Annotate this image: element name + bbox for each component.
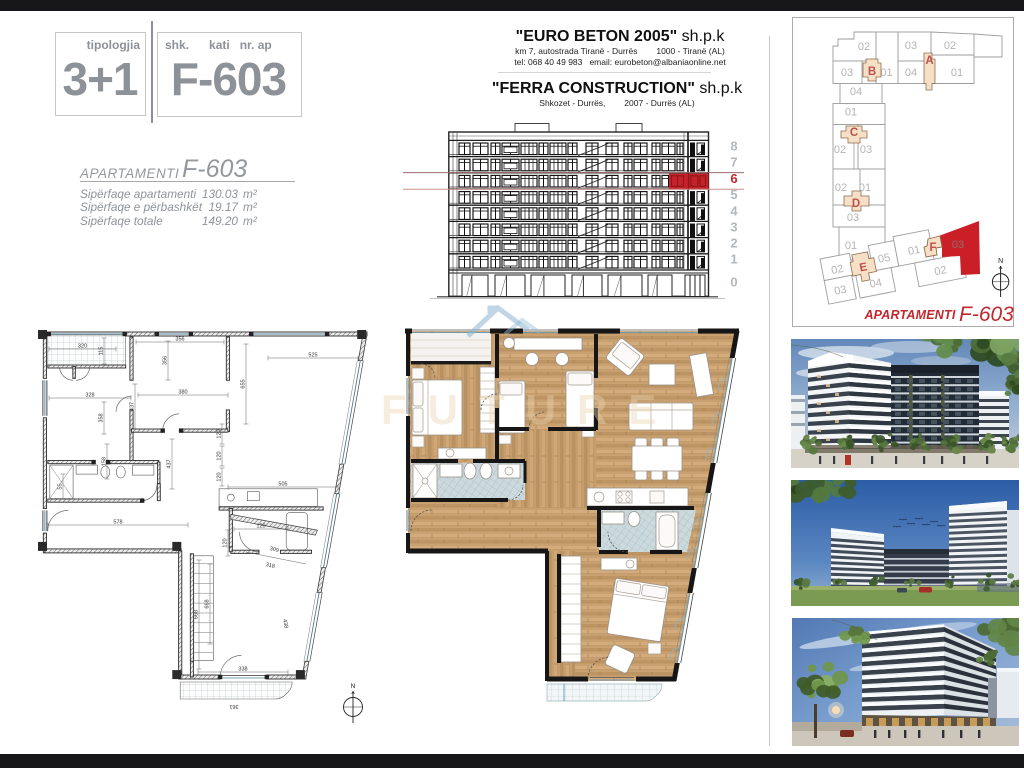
- svg-text:338: 338: [238, 667, 247, 673]
- svg-text:03: 03: [905, 40, 917, 52]
- svg-text:505: 505: [278, 482, 287, 488]
- svg-text:318: 318: [265, 562, 275, 570]
- svg-text:D: D: [852, 198, 860, 210]
- svg-text:01: 01: [951, 67, 963, 79]
- svg-text:04: 04: [869, 277, 883, 291]
- svg-text:437: 437: [130, 402, 136, 411]
- svg-text:01: 01: [880, 67, 892, 79]
- svg-text:3: 3: [730, 220, 737, 235]
- svg-text:356: 356: [175, 337, 184, 343]
- svg-text:02: 02: [835, 182, 847, 194]
- svg-text:02: 02: [944, 40, 956, 52]
- svg-text:B: B: [868, 66, 876, 78]
- svg-text:1: 1: [730, 252, 737, 267]
- svg-text:02: 02: [858, 41, 870, 53]
- svg-text:03: 03: [860, 144, 872, 156]
- svg-text:04: 04: [905, 67, 917, 79]
- svg-text:4: 4: [730, 203, 738, 218]
- svg-text:03: 03: [847, 212, 859, 224]
- svg-text:03: 03: [833, 284, 847, 298]
- svg-text:0: 0: [730, 274, 737, 289]
- svg-text:01: 01: [907, 244, 921, 258]
- svg-text:F-603: F-603: [959, 303, 1014, 326]
- svg-text:437: 437: [167, 459, 173, 468]
- svg-text:525: 525: [308, 353, 317, 359]
- svg-text:01: 01: [845, 240, 857, 252]
- svg-text:5: 5: [730, 187, 737, 202]
- svg-text:N: N: [998, 258, 1003, 265]
- svg-text:C: C: [850, 127, 858, 139]
- svg-text:03: 03: [952, 239, 964, 251]
- svg-text:01: 01: [845, 107, 857, 119]
- svg-text:120: 120: [217, 451, 223, 460]
- svg-text:6: 6: [730, 171, 737, 186]
- svg-text:F: F: [929, 242, 936, 254]
- svg-text:328: 328: [85, 393, 94, 399]
- svg-text:120: 120: [217, 472, 223, 481]
- svg-text:361: 361: [229, 703, 238, 709]
- svg-text:02: 02: [933, 264, 947, 278]
- svg-text:N: N: [351, 683, 356, 690]
- svg-text:320: 320: [78, 344, 87, 350]
- svg-text:03: 03: [841, 67, 853, 79]
- svg-text:115: 115: [99, 347, 105, 356]
- svg-text:358: 358: [99, 413, 105, 422]
- svg-text:120: 120: [217, 429, 223, 438]
- svg-text:7: 7: [730, 155, 737, 170]
- svg-text:2: 2: [730, 236, 737, 251]
- svg-text:A: A: [925, 55, 933, 67]
- svg-text:356: 356: [163, 356, 169, 365]
- svg-text:380: 380: [178, 390, 187, 396]
- svg-text:02: 02: [830, 263, 844, 277]
- svg-text:02: 02: [834, 144, 846, 156]
- svg-text:655: 655: [241, 379, 247, 388]
- svg-text:309: 309: [269, 546, 279, 554]
- svg-text:578: 578: [113, 520, 122, 526]
- svg-text:04: 04: [850, 86, 862, 98]
- svg-text:8: 8: [730, 139, 737, 154]
- svg-text:668: 668: [205, 599, 211, 608]
- svg-text:120: 120: [223, 538, 229, 547]
- svg-text:438: 438: [281, 619, 289, 629]
- svg-text:APARTAMENTI: APARTAMENTI: [863, 308, 955, 322]
- svg-text:668: 668: [194, 610, 200, 619]
- svg-text:05: 05: [877, 252, 891, 266]
- svg-text:120: 120: [256, 524, 265, 530]
